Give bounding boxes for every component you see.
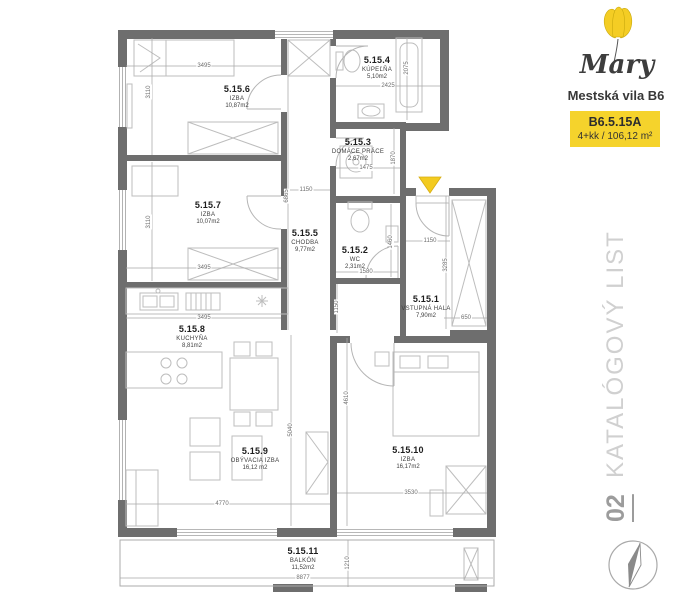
dimension-label: 2075	[404, 60, 410, 75]
dimension-label: 4610	[344, 390, 350, 405]
dimension-label: 1150	[334, 300, 340, 315]
dimension-label: 1475	[358, 165, 373, 171]
room-label-wc: 5.15.2 WC 2,31m2	[342, 245, 368, 272]
brand-script: Mary	[580, 50, 654, 80]
dimension-label: 8877	[295, 575, 310, 581]
dimension-label: 3495	[196, 265, 211, 271]
room-label-izba-10: 5.15.10 IZBA 16,17m2	[392, 445, 423, 472]
dimension-label: 3495	[196, 315, 211, 321]
dimension-label: 3285	[443, 257, 449, 272]
unit-spec: 4+kk / 106,12 m²	[570, 131, 660, 142]
room-label-izba-7: 5.15.7 IZBA 10,07m2	[195, 200, 221, 227]
compass-icon	[606, 536, 660, 596]
room-label-chodba: 5.15.5 CHODBA 9,77m2	[291, 228, 318, 255]
room-label-balkon: 5.15.11 BALKÓN 11,52m2	[288, 546, 319, 573]
dimension-label: 1460	[388, 234, 394, 249]
unit-code-badge: B6.5.15A 4+kk / 106,12 m²	[570, 111, 660, 147]
room-label-domace-prace: 5.15.3 DOMÁCE PRÁCE 2,67m2	[332, 137, 384, 164]
door-swings	[247, 46, 449, 386]
dimension-label: 1210	[345, 555, 351, 570]
dimension-label: 4770	[214, 501, 229, 507]
side-title: 02 KATALÓGOVÝ LIST	[602, 184, 636, 522]
room-label-vstupna-hala: 5.15.1 VSTUPNÁ HALA 7,90m2	[401, 294, 450, 321]
dimension-label: 1150	[423, 238, 438, 244]
room-label-kupelna: 5.15.4 KÚPEĽŇA 5,10m2	[362, 55, 392, 82]
dimension-label: 3530	[403, 490, 418, 496]
room-label-izba-6: 5.15.6 IZBA 10,87m2	[224, 84, 250, 111]
brand-subtitle: Mestská vila B6	[568, 88, 665, 103]
room-label-obyvacia-izba: 5.15.9 OBÝVACIA IZBA 16,12 m2	[231, 446, 280, 473]
dimension-label: 1870	[391, 150, 397, 165]
unit-code: B6.5.15A	[570, 115, 660, 129]
dimension-label: 6865	[284, 188, 290, 203]
dimension-label: 3110	[146, 85, 152, 100]
dimension-label: 650	[460, 315, 472, 321]
dimension-label: 1150	[299, 187, 314, 193]
side-title-text: KATALÓGOVÝ LIST	[602, 230, 629, 478]
catalog-sheet: 3495 3110 3495 3110 3495 2425 2075 1475 …	[0, 0, 682, 600]
room-label-kuchyna: 5.15.8 KUCHYŇA 8,81m2	[176, 324, 207, 351]
dimension-label: 5040	[288, 422, 294, 437]
dimension-label: 3495	[196, 63, 211, 69]
dimension-label: 3110	[146, 215, 152, 230]
page-number: 02	[602, 494, 630, 522]
dimension-label: 2425	[380, 83, 395, 89]
entrance-arrow-icon	[419, 177, 441, 193]
